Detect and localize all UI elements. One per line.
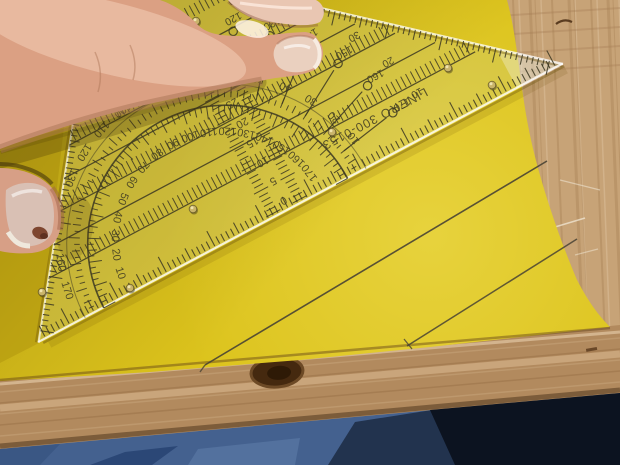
photo-canvas: 1020304050607080901001101201301401501601… bbox=[0, 0, 620, 465]
svg-text:110: 110 bbox=[199, 125, 218, 139]
svg-text:40: 40 bbox=[110, 210, 124, 224]
nail-damage-spot-dark bbox=[40, 233, 48, 239]
svg-text:30: 30 bbox=[109, 229, 121, 242]
svg-text:20: 20 bbox=[109, 248, 123, 262]
photo-scene: 1020304050607080901001101201301401501601… bbox=[0, 0, 620, 465]
